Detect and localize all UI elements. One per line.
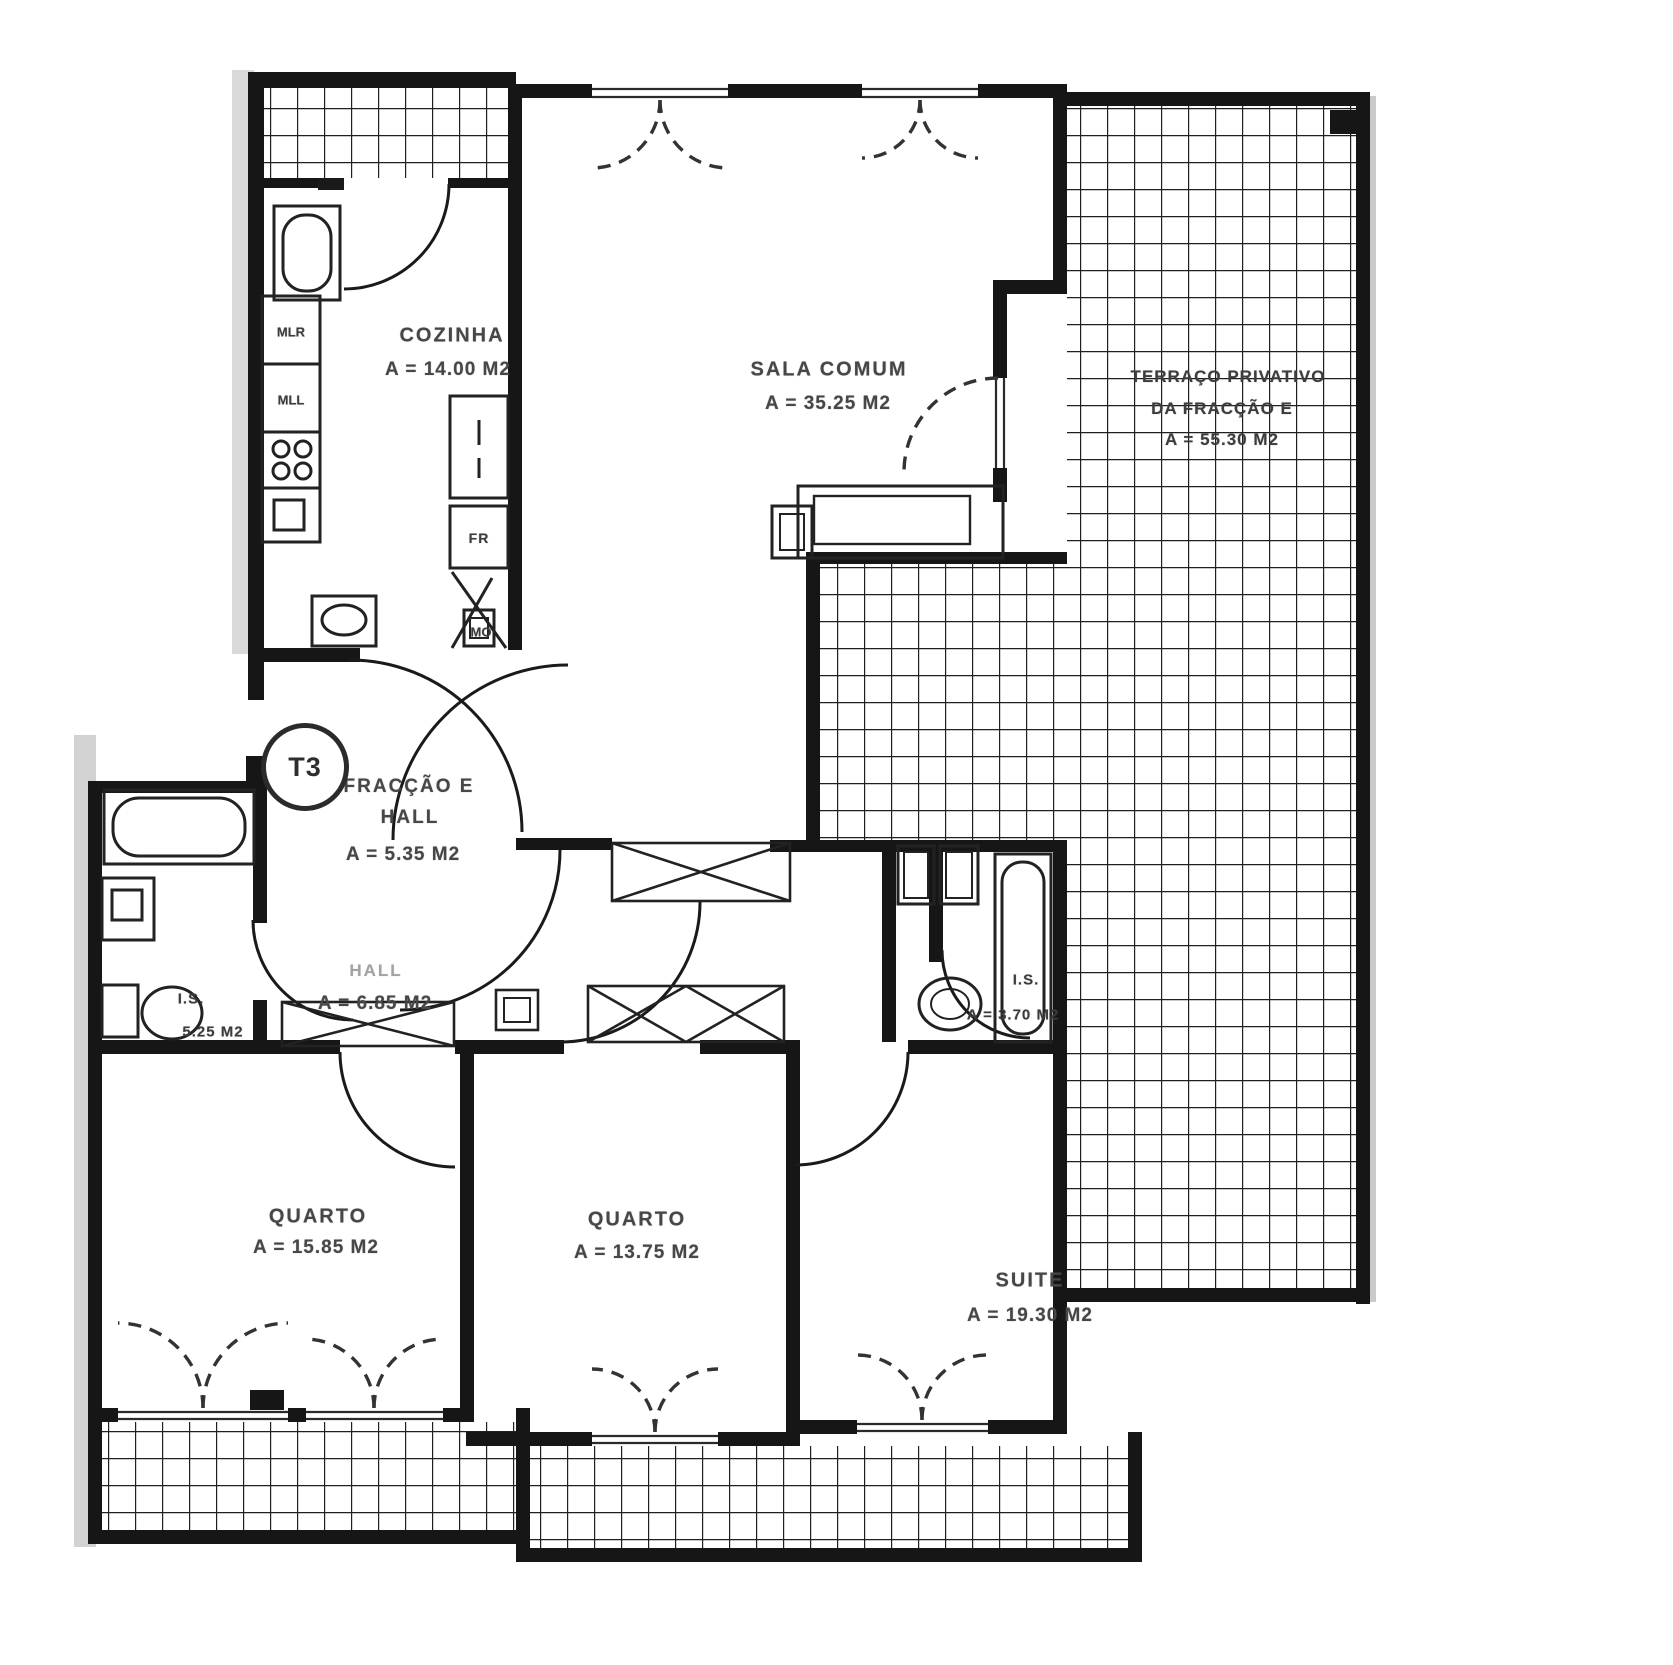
door-arc-balcony-kitchen — [344, 184, 449, 289]
area-label-cozinha: A = 14.00 M2 — [385, 359, 511, 381]
appliance-label-fr: FR — [469, 530, 490, 546]
tiled-areas — [102, 88, 1356, 1548]
floor-plan: COZINHA A = 14.00 M2 SALA COMUM A = 35.2… — [0, 0, 1673, 1665]
balcony-center-tiles — [530, 1446, 1128, 1548]
door-arc-is2 — [942, 950, 1030, 1038]
washbasin-icon — [102, 878, 154, 940]
planter-icon — [772, 486, 1003, 558]
area-label-is2: A = 3.70 M2 — [967, 1007, 1060, 1024]
room-label-cozinha: COZINHA — [399, 325, 504, 348]
appliance-label-mo: MO — [471, 625, 492, 640]
room-label-fraccao: FRACÇÃO E — [344, 776, 475, 798]
type-badge: T3 — [261, 723, 349, 811]
room-label-entry-hall: HALL — [381, 807, 440, 829]
area-label-quarto1: A = 15.85 M2 — [253, 1237, 379, 1259]
area-label-is1: 5.25 M2 — [182, 1024, 243, 1041]
room-label-is1: I.S. — [178, 991, 205, 1008]
area-label-hall: A = 6.85 M2 — [318, 993, 432, 1015]
door-arc-quarto2 — [560, 902, 700, 1042]
laundry-tank-icon — [274, 206, 340, 300]
room-label-sala-comum: SALA COMUM — [750, 359, 907, 382]
room-label-hall: HALL — [349, 961, 402, 981]
appliance-label-mlr: MLR — [277, 325, 305, 340]
room-label-is2: I.S. — [1013, 972, 1040, 989]
appliance-label-mll: MLL — [278, 393, 305, 408]
area-label-suite: A = 19.30 M2 — [967, 1305, 1093, 1327]
room-label-suite: SUITE — [996, 1270, 1065, 1293]
area-label-quarto2: A = 13.75 M2 — [574, 1242, 700, 1264]
room-label-quarto1: QUARTO — [269, 1206, 367, 1229]
area-label-terraco: A = 55.30 M2 — [1165, 430, 1279, 450]
floor-plan-drawing — [0, 0, 1673, 1665]
area-label-sala-comum: A = 35.25 M2 — [765, 393, 891, 415]
area-label-entry-hall: A = 5.35 M2 — [346, 844, 460, 866]
door-arc-quarto1 — [340, 1052, 455, 1167]
door-arc-suite — [795, 1052, 908, 1165]
room-label-terraco-line1: TERRAÇO PRIVATIVO — [1131, 367, 1326, 387]
room-label-terraco-line2: DA FRACÇÃO E — [1151, 399, 1293, 419]
balcony-kitchen-tiles — [258, 88, 508, 178]
room-label-quarto2: QUARTO — [588, 1209, 686, 1232]
wardrobe-icon — [282, 843, 790, 1046]
kitchen-cabinets-icon — [450, 396, 508, 648]
bathtub-icon — [104, 790, 254, 864]
door-leaf — [318, 178, 344, 190]
door-arc-hall — [400, 850, 560, 1010]
balcony-left-tiles — [102, 1422, 516, 1530]
kitchen-appliances-icon — [262, 296, 376, 646]
terrace-tiles — [820, 106, 1356, 1288]
